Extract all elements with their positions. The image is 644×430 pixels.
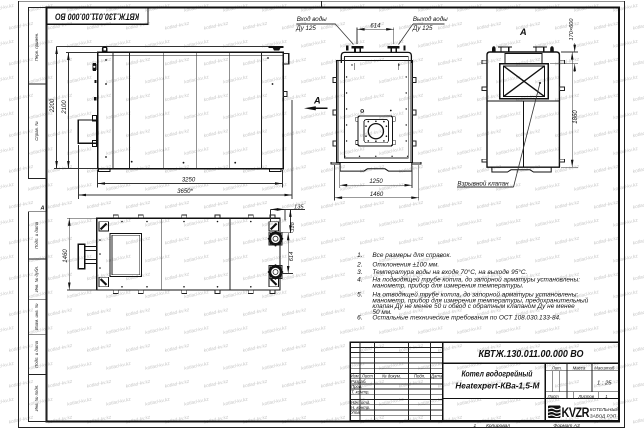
svg-text:А: А: [519, 27, 527, 37]
svg-text:Лист: Лист: [547, 394, 559, 399]
svg-text:Лит.: Лит.: [551, 365, 562, 370]
svg-text:Масса: Масса: [573, 365, 586, 370]
svg-text:Подп. и дата: Подп. и дата: [34, 340, 39, 368]
svg-text:4.: 4.: [357, 277, 362, 284]
svg-text:Отклонения ±100 мм.: Отклонения ±100 мм.: [372, 261, 439, 268]
svg-text:Изм.: Изм.: [351, 374, 360, 379]
svg-text:клапан Ду не менее 50 и обвод: клапан Ду не менее 50 и обвод с обратным…: [372, 302, 575, 310]
svg-text:Все размеры для справок.: Все размеры для справок.: [372, 251, 451, 259]
svg-text:2200: 2200: [50, 98, 56, 113]
svg-text:Взрывной клапан: Взрывной клапан: [457, 180, 509, 188]
svg-text:Heatexpert-КВа-1,5-М: Heatexpert-КВа-1,5-М: [455, 381, 539, 390]
svg-text:Котел водогрейный: Котел водогрейный: [462, 369, 533, 378]
svg-text:ЗАВОД РЭП: ЗАВОД РЭП: [590, 414, 617, 419]
svg-text:318: 318: [290, 221, 296, 231]
svg-text:2100: 2100: [62, 100, 68, 115]
svg-text:Масштаб: Масштаб: [594, 365, 615, 370]
svg-text:6.: 6.: [357, 315, 362, 322]
svg-text:5.: 5.: [357, 292, 362, 299]
svg-text:КВТЖ.130.011.00.000 ВО: КВТЖ.130.011.00.000 ВО: [55, 11, 139, 22]
svg-text:Дата: Дата: [430, 374, 443, 379]
svg-text:1 : 25: 1 : 25: [597, 381, 612, 387]
svg-text:1.: 1.: [357, 252, 362, 259]
svg-text:Т. контр.: Т. контр.: [351, 389, 370, 394]
svg-text:3250: 3250: [182, 177, 196, 183]
svg-text:Остальные технические требован: Остальные технические требования по ОСТ …: [372, 314, 561, 322]
svg-text:Перв. примен.: Перв. примен.: [34, 33, 39, 62]
svg-text:1860: 1860: [573, 110, 579, 124]
svg-text:Вход воды: Вход воды: [297, 16, 327, 23]
svg-text:3.: 3.: [357, 269, 362, 276]
svg-text:Подп. и дата: Подп. и дата: [34, 221, 39, 249]
svg-text:Формат А3: Формат А3: [553, 423, 580, 429]
svg-text:Инв. № дубл.: Инв. № дубл.: [34, 266, 39, 292]
svg-text:1: 1: [474, 423, 477, 429]
svg-text:2.: 2.: [356, 261, 362, 268]
svg-text:Ду 125: Ду 125: [412, 25, 433, 32]
svg-text:135: 135: [294, 204, 304, 210]
svg-text:Утв.: Утв.: [351, 410, 361, 415]
svg-text:Лист: Лист: [361, 374, 373, 379]
svg-text:Выход воды: Выход воды: [413, 16, 448, 23]
svg-text:614: 614: [370, 24, 381, 30]
svg-text:КВТЖ.130.011.00.000 ВО: КВТЖ.130.011.00.000 ВО: [479, 349, 584, 360]
svg-text:Справ. №: Справ. №: [34, 121, 39, 141]
svg-text:170×600: 170×600: [569, 18, 575, 41]
svg-text:1460: 1460: [370, 192, 384, 198]
svg-text:Взам. инв. №: Взам. инв. №: [34, 303, 39, 330]
svg-text:614: 614: [289, 252, 295, 262]
svg-text:Ду 125: Ду 125: [295, 25, 316, 32]
svg-text:манометр, прибор для измерения: манометр, прибор для измерения температу…: [372, 281, 523, 289]
svg-text:Листов: Листов: [577, 394, 594, 399]
svg-text:А: А: [40, 206, 45, 212]
svg-text:3650*: 3650*: [177, 189, 193, 195]
svg-text:KVZR: KVZR: [562, 405, 590, 420]
svg-text:1460: 1460: [63, 249, 69, 263]
svg-text:КОТЕЛЬНЫЙ: КОТЕЛЬНЫЙ: [590, 405, 620, 412]
svg-text:Температура воды на входе 70°С: Температура воды на входе 70°С, на выход…: [372, 268, 527, 276]
svg-text:Подп.: Подп.: [414, 374, 425, 379]
svg-text:Инв. № подл.: Инв. № подл.: [34, 385, 39, 412]
svg-text:Копировал: Копировал: [486, 423, 510, 429]
svg-text:А: А: [313, 96, 321, 106]
svg-text:1250: 1250: [369, 179, 383, 185]
svg-text:№ докум.: № докум.: [382, 374, 401, 379]
